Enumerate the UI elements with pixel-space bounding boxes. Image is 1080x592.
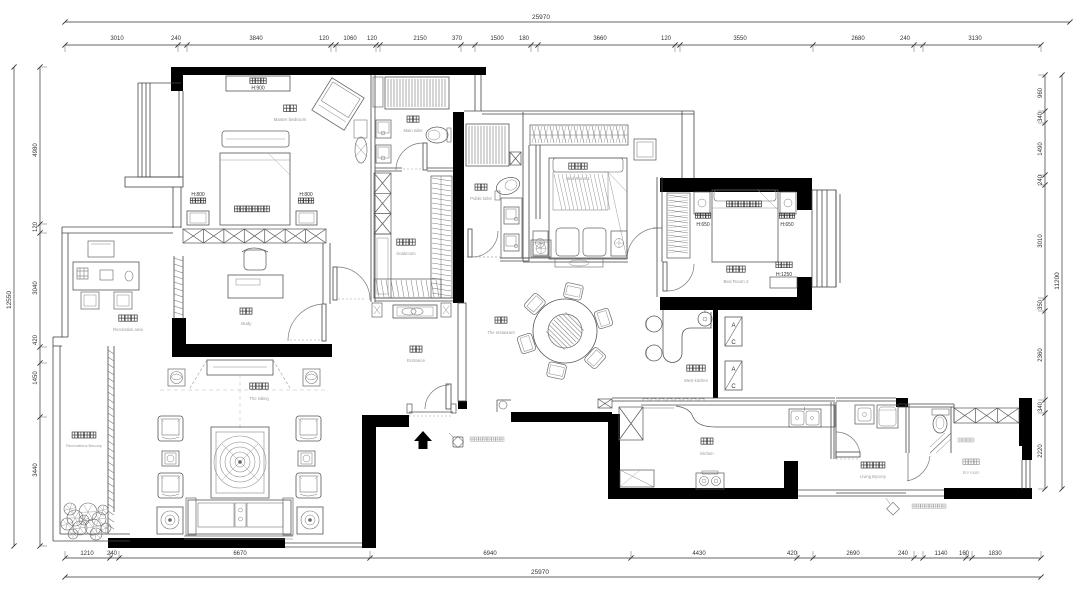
svg-text:2150: 2150	[413, 36, 427, 42]
svg-text:1210: 1210	[80, 551, 94, 557]
svg-text:120: 120	[367, 36, 378, 42]
svg-text:H:650: H:650	[696, 222, 710, 228]
svg-text:Public toilet: Public toilet	[470, 196, 492, 201]
svg-text:240: 240	[107, 551, 118, 557]
svg-text:160: 160	[959, 551, 970, 557]
svg-text:C: C	[731, 384, 736, 390]
svg-text:25970: 25970	[532, 14, 550, 21]
svg-text:Recreation area: Recreation area	[113, 327, 143, 332]
svg-text:1490: 1490	[1038, 142, 1044, 156]
svg-text:1830: 1830	[988, 551, 1002, 557]
svg-text:240: 240	[900, 36, 911, 42]
svg-text:2360: 2360	[1038, 348, 1044, 362]
svg-text:cloakroom: cloakroom	[396, 251, 416, 256]
svg-text:350: 350	[1038, 299, 1044, 310]
svg-text:H:800: H:800	[191, 192, 205, 198]
svg-text:2220: 2220	[1038, 444, 1044, 458]
svg-text:340: 340	[1038, 401, 1044, 412]
svg-text:kitchen: kitchen	[700, 451, 714, 456]
svg-text:2690: 2690	[846, 551, 860, 557]
svg-text:2680: 2680	[851, 36, 865, 42]
svg-text:11200: 11200	[1054, 272, 1061, 290]
svg-text:H:650: H:650	[780, 222, 794, 228]
svg-text:H:800: H:800	[299, 192, 313, 198]
svg-text:Bed Room 2: Bed Room 2	[723, 279, 749, 284]
svg-text:West kitchen: West kitchen	[684, 378, 709, 383]
svg-text:3660: 3660	[593, 36, 607, 42]
svg-text:3010: 3010	[110, 36, 124, 42]
svg-text:420: 420	[33, 334, 39, 345]
svg-text:Srv room: Srv room	[963, 470, 980, 475]
svg-text:3130: 3130	[968, 36, 982, 42]
svg-text:H:1250: H:1250	[776, 272, 792, 278]
svg-text:6940: 6940	[483, 551, 497, 557]
svg-text:The sitting: The sitting	[249, 396, 269, 401]
svg-text:Master bedroom: Master bedroom	[274, 117, 307, 122]
svg-text:6670: 6670	[233, 551, 247, 557]
svg-text:Entrance: Entrance	[407, 358, 426, 363]
svg-text:C: C	[731, 340, 736, 346]
svg-text:120: 120	[661, 36, 672, 42]
svg-text:1140: 1140	[935, 551, 949, 557]
svg-text:Living Bycony: Living Bycony	[860, 474, 887, 479]
svg-text:340: 340	[1038, 111, 1044, 122]
svg-text:1500: 1500	[490, 36, 504, 42]
svg-text:240: 240	[898, 551, 909, 557]
svg-text:3840: 3840	[249, 36, 263, 42]
svg-text:study: study	[241, 321, 253, 326]
svg-text:420: 420	[787, 551, 798, 557]
svg-text:960: 960	[1038, 87, 1044, 98]
svg-text:240: 240	[1038, 174, 1044, 185]
svg-text:12550: 12550	[6, 291, 13, 309]
svg-text:3040: 3040	[33, 281, 39, 295]
svg-text:3550: 3550	[733, 36, 747, 42]
svg-text:4980: 4980	[33, 143, 39, 157]
svg-text:1060: 1060	[343, 36, 357, 42]
svg-text:120: 120	[33, 221, 39, 232]
svg-text:Main toilet: Main toilet	[403, 128, 423, 133]
svg-text:3010: 3010	[1038, 234, 1044, 248]
svg-text:4430: 4430	[692, 551, 706, 557]
svg-text:180: 180	[519, 36, 530, 42]
svg-text:25970: 25970	[531, 569, 549, 576]
svg-text:240: 240	[171, 36, 182, 42]
svg-text:A: A	[731, 367, 735, 373]
svg-text:A: A	[731, 323, 735, 329]
svg-text:1450: 1450	[33, 371, 39, 385]
svg-text:H:900: H:900	[251, 86, 265, 92]
svg-text:370: 370	[452, 36, 463, 42]
svg-text:3440: 3440	[33, 463, 39, 477]
svg-text:Recreations Bacony: Recreations Bacony	[66, 443, 102, 448]
svg-text:The restaurant: The restaurant	[487, 330, 515, 335]
svg-text:120: 120	[319, 36, 330, 42]
